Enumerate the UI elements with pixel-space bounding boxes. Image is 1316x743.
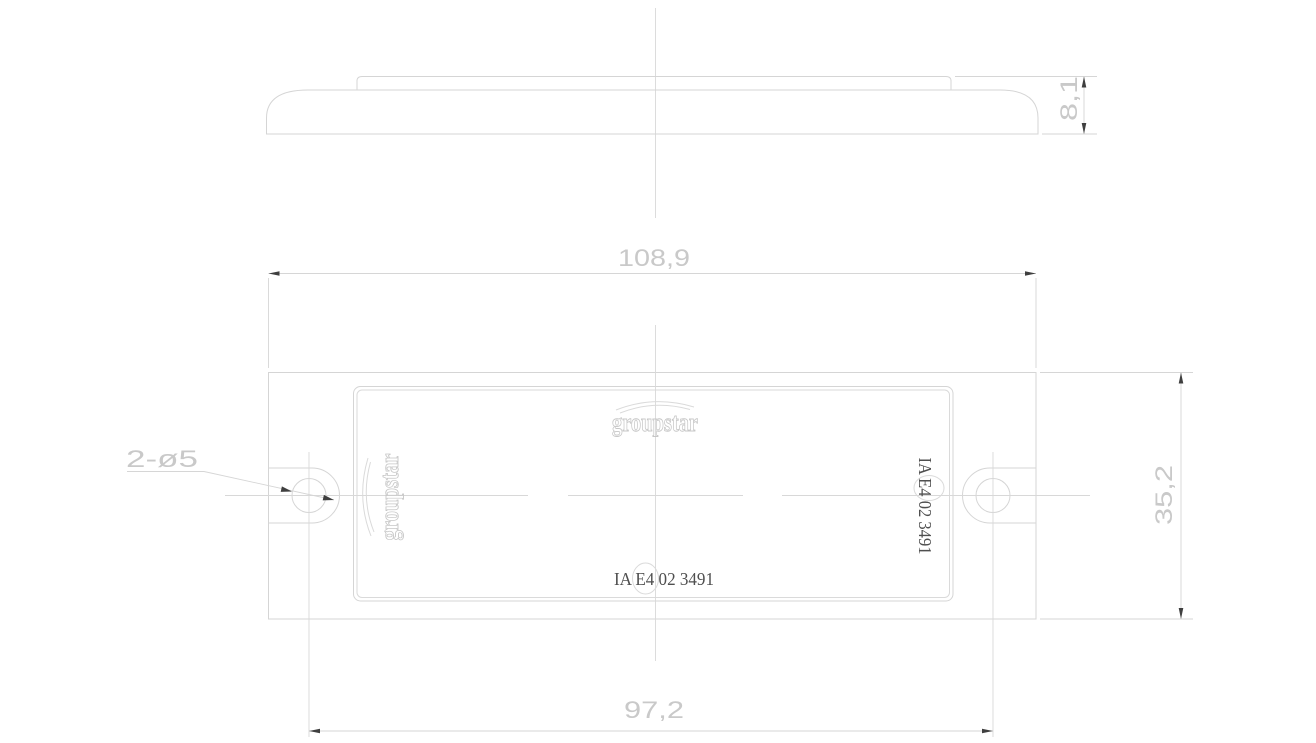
arrowhead-down (1179, 608, 1184, 619)
arrowhead-left (309, 729, 320, 734)
side-profile-view (267, 8, 1039, 218)
approval-marking-text-bottom: IA E4 02 3491 (614, 569, 714, 589)
dimension-text-35-2: 35,2 (1151, 465, 1178, 525)
brand-logo-text-left: groupstar (375, 454, 404, 541)
dimension-overall-width: 108,9 (269, 245, 1037, 368)
dimension-text-108-9: 108,9 (618, 245, 690, 272)
arrowhead-down (1082, 123, 1087, 134)
dimension-profile-height: 8,1 (955, 76, 1097, 134)
dimension-hole-spacing: 97,2 (309, 697, 993, 733)
arrowhead-left (269, 271, 280, 276)
approval-marking-right: IA E4 02 3491 (914, 458, 944, 555)
side-view-body-outline (267, 90, 1039, 134)
arrowhead-right (982, 729, 993, 734)
logo-swoosh-lower-arc-left (366, 462, 374, 532)
cad-drawing-page: 8,1 108,9 groupstar groupstar (0, 0, 1316, 743)
hole-callout-text: 2-ø5 (126, 446, 198, 473)
hole-callout: 2-ø5 (126, 446, 334, 500)
leader-arrowhead-near (281, 486, 292, 492)
brand-logo-top: groupstar (612, 402, 698, 437)
brand-logo-text-top: groupstar (612, 408, 698, 437)
side-view-lens-lip-outline (357, 77, 951, 91)
dimension-text-97-2: 97,2 (624, 697, 684, 724)
approval-marking-bottom: IA E4 02 3491 (614, 563, 714, 594)
arrowhead-right (1025, 271, 1036, 276)
approval-marking-text-right: IA E4 02 3491 (915, 458, 935, 555)
dimension-text-8-1: 8,1 (1056, 76, 1083, 121)
arrowhead-up (1179, 373, 1184, 384)
brand-logo-left: groupstar (363, 454, 404, 541)
drawing-canvas: 8,1 108,9 groupstar groupstar (0, 0, 1316, 743)
front-view (225, 325, 1090, 737)
